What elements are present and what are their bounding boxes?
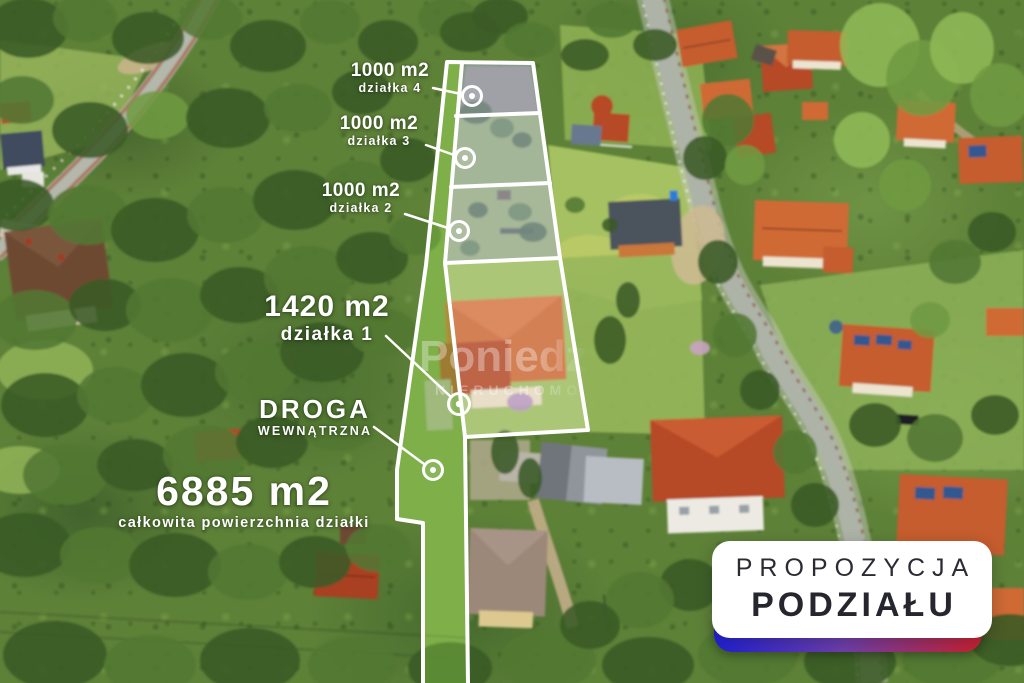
parcel-area: 1000 m2 xyxy=(323,114,435,135)
parcel-name: działka 1 xyxy=(254,325,400,346)
parcel-name: działka 2 xyxy=(305,202,417,216)
badge-line2: PODZIAŁU xyxy=(747,586,957,625)
badge-line1: PROPOZYCJA xyxy=(729,554,975,583)
parcel-area: 1000 m2 xyxy=(334,61,446,82)
aerial-photo: 1000 m2 działka 4 1000 m2 działka 3 1000… xyxy=(0,0,1024,683)
road-label-line1: DROGA xyxy=(252,395,378,423)
marker-dzialka-3 xyxy=(456,149,475,168)
parcel-name: działka 4 xyxy=(334,82,446,96)
parcel-name: działka 3 xyxy=(323,135,435,149)
total-area-caption: całkowita powierzchnia działki xyxy=(94,516,394,532)
parcel-label-dzialka-3: 1000 m2 działka 3 xyxy=(323,114,435,148)
internal-road-label: DROGA WEWNĄTRZNA xyxy=(252,395,378,439)
parcel-label-dzialka-1: 1420 m2 działka 1 xyxy=(254,291,400,346)
parcel-label-dzialka-2: 1000 m2 działka 2 xyxy=(305,181,417,215)
road-label-line2: WEWNĄTRZNA xyxy=(252,425,378,439)
parcel-area: 1000 m2 xyxy=(305,181,417,202)
marker-dzialka-4 xyxy=(463,87,482,106)
parcel-area: 1420 m2 xyxy=(254,291,400,323)
marker-dzialka-1 xyxy=(449,394,470,415)
total-area-label: 6885 m2 całkowita powierzchnia działki xyxy=(94,469,394,532)
total-area-value: 6885 m2 xyxy=(94,469,394,513)
proposal-badge: PROPOZYCJA PODZIAŁU xyxy=(712,541,992,638)
marker-droga xyxy=(424,461,443,480)
parcel-label-dzialka-4: 1000 m2 działka 4 xyxy=(334,61,446,95)
badge-card: PROPOZYCJA PODZIAŁU xyxy=(712,541,992,638)
marker-dzialka-2 xyxy=(450,222,469,241)
